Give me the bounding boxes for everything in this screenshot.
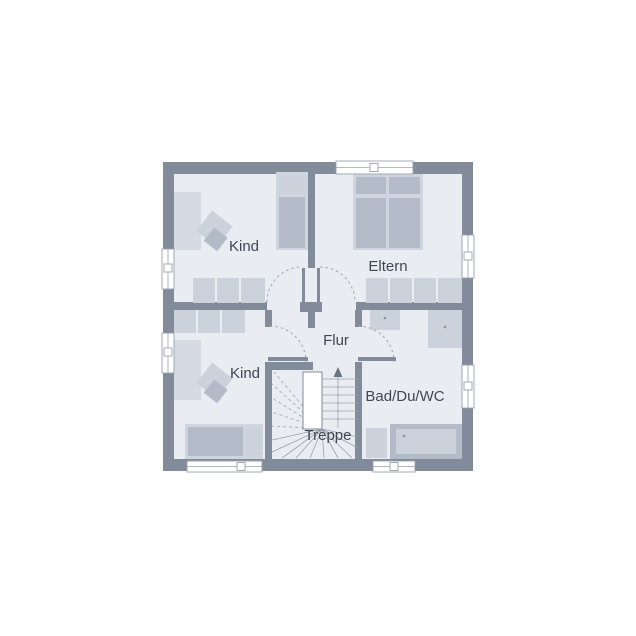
shower-drain <box>444 326 447 329</box>
window-right-eltern <box>462 235 474 278</box>
label-kind-top-left: Kind <box>229 238 259 255</box>
wall-kind-east-stub <box>265 310 272 327</box>
wardrobe-segment <box>222 310 245 333</box>
wall-bad-west <box>355 362 362 459</box>
wall-center-post-lower <box>308 312 315 328</box>
wardrobe-segment <box>390 278 412 303</box>
washbasin <box>370 310 400 330</box>
label-bad: Bad/Du/WC <box>365 388 444 405</box>
wardrobe-segment <box>217 278 239 303</box>
window-right-bad <box>462 365 474 408</box>
bed-mattress <box>188 427 243 456</box>
shower <box>428 310 462 348</box>
label-treppe: Treppe <box>305 427 352 444</box>
label-flur: Flur <box>323 332 349 349</box>
floorplan-drawing: Kind Eltern Flur Kind Bad/Du/WC Treppe <box>0 0 636 636</box>
wardrobe-segment <box>438 278 462 303</box>
wall-eltern-bad-divider <box>356 302 462 310</box>
bathtub-inner <box>396 429 456 454</box>
bed-pillow <box>279 175 305 194</box>
window-top-eltern <box>336 161 413 174</box>
bed-mattress-left <box>356 198 386 248</box>
wall-right <box>462 162 473 471</box>
bathtub-drain <box>403 435 406 438</box>
wall-center-post <box>300 302 322 312</box>
bed-mattress-right <box>389 198 420 248</box>
window-handle-icon <box>164 348 172 356</box>
window-bottom-kind <box>187 461 262 472</box>
washbasin-tap <box>384 317 387 320</box>
floorplan-canvas: Kind Eltern Flur Kind Bad/Du/WC Treppe <box>0 0 636 636</box>
toilet <box>366 428 387 458</box>
window-handle-icon <box>464 382 472 390</box>
stair-newel <box>303 372 322 429</box>
wardrobe-segment <box>198 310 220 333</box>
bed-mattress <box>279 197 305 248</box>
wardrobe <box>366 278 462 303</box>
door-leaf <box>302 268 305 303</box>
wardrobe <box>193 278 265 303</box>
wardrobe <box>174 310 245 333</box>
wall-stair-west <box>265 362 272 459</box>
bed-pillow-right <box>389 177 420 194</box>
window-left-kind-top <box>162 249 174 289</box>
wall-kind-divider-left <box>174 302 267 310</box>
wall-stair-north <box>265 362 313 370</box>
wardrobe-segment <box>174 310 196 333</box>
door-leaf <box>317 268 320 303</box>
window-handle-icon <box>464 252 472 260</box>
label-kind-bottom-left: Kind <box>230 365 260 382</box>
window-handle-icon <box>164 264 172 272</box>
door-leaf <box>268 357 308 361</box>
wall-top <box>163 162 473 174</box>
window-handle-icon <box>370 164 378 172</box>
sideboard <box>174 340 201 400</box>
bed-pillow <box>246 428 261 455</box>
window-handle-icon <box>390 463 398 471</box>
window-handle-icon <box>237 463 245 471</box>
wall-center-vertical <box>308 174 315 268</box>
wardrobe-segment <box>414 278 436 303</box>
door-leaf <box>358 357 396 361</box>
wardrobe-segment <box>193 278 215 303</box>
wall-bad-west-stub <box>355 310 362 327</box>
wall-left <box>163 162 174 471</box>
bed-pillow-left <box>356 177 386 194</box>
window-left-kind-bottom <box>162 333 174 373</box>
wardrobe-segment <box>366 278 388 303</box>
wardrobe-segment <box>241 278 265 303</box>
label-eltern: Eltern <box>368 258 407 275</box>
window-bottom-bad <box>373 461 415 472</box>
sideboard <box>174 192 201 250</box>
